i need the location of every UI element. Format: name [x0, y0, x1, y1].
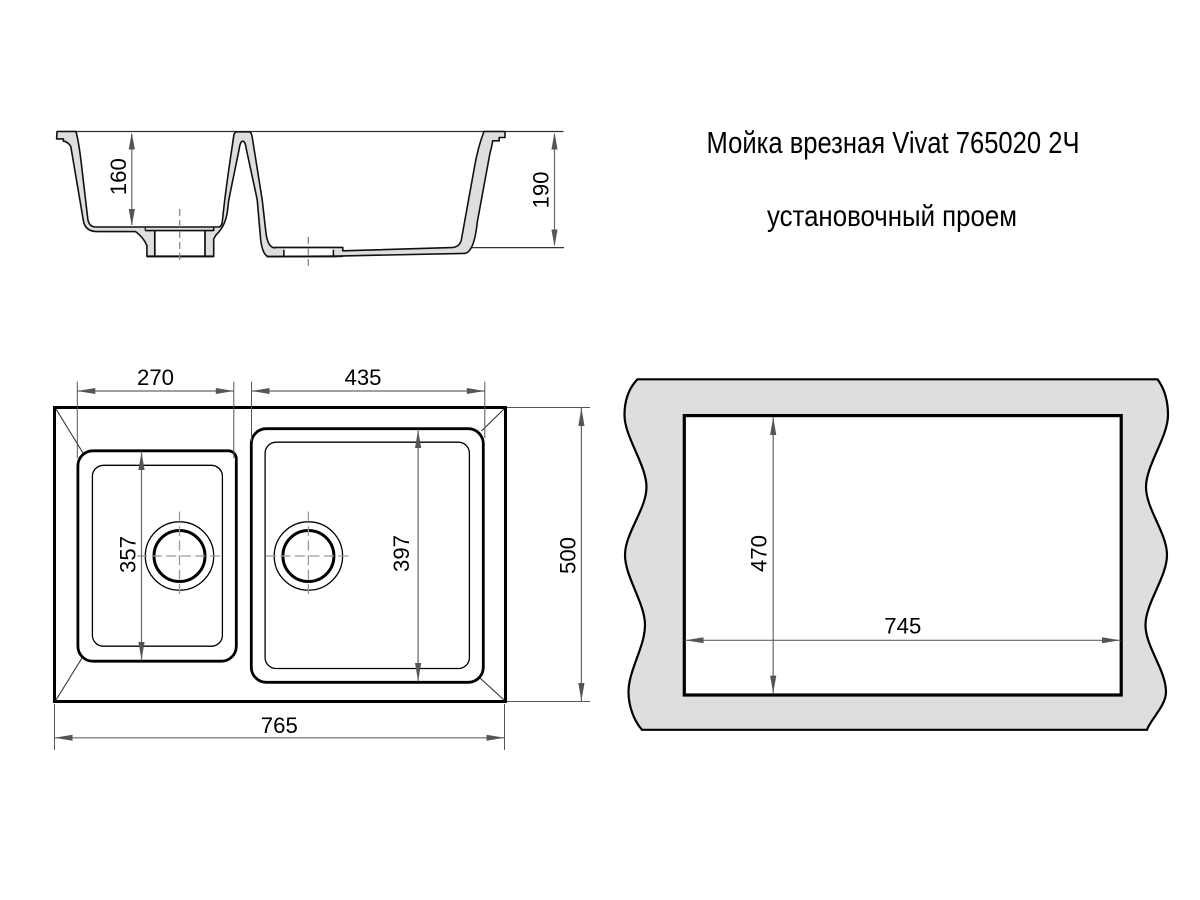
- svg-text:435: 435: [345, 365, 382, 390]
- svg-text:Мойка врезная Vivat 765020 2Ч: Мойка врезная Vivat 765020 2Ч: [707, 125, 1080, 160]
- svg-text:270: 270: [137, 365, 174, 390]
- svg-text:357: 357: [116, 536, 141, 573]
- svg-text:установочный проем: установочный проем: [767, 200, 1017, 233]
- svg-text:745: 745: [884, 614, 921, 639]
- svg-text:190: 190: [529, 172, 554, 209]
- svg-text:160: 160: [106, 158, 131, 195]
- svg-text:397: 397: [389, 535, 414, 572]
- svg-text:765: 765: [261, 713, 298, 738]
- svg-text:470: 470: [747, 535, 772, 572]
- svg-text:500: 500: [556, 537, 581, 574]
